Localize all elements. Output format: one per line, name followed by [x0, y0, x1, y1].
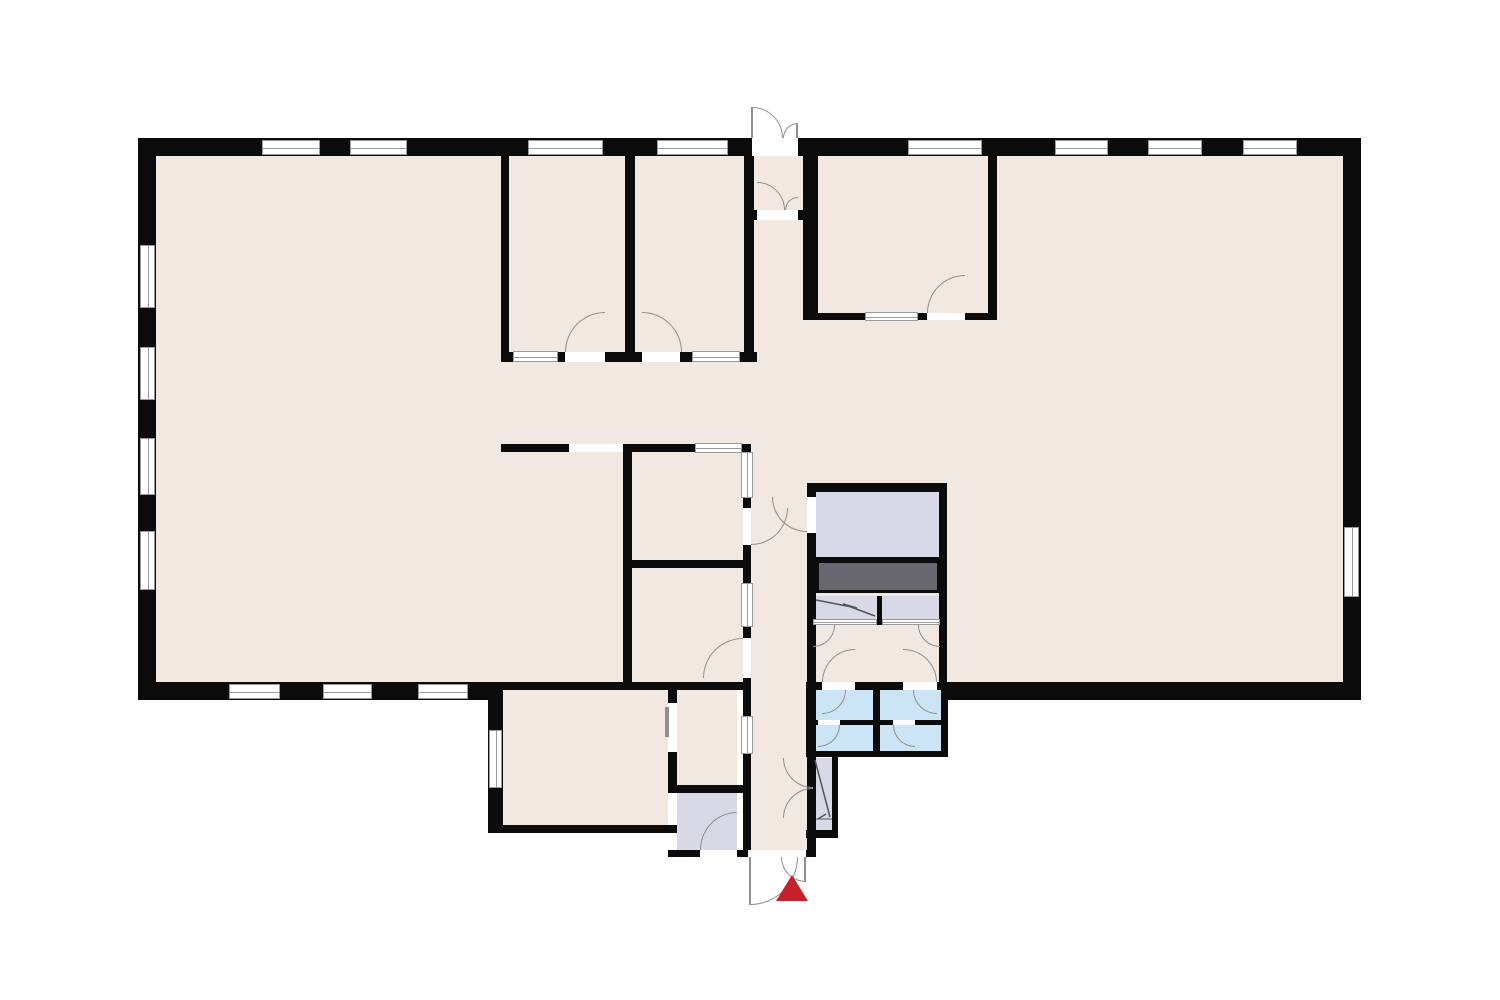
wall-midrooms-divider: [623, 560, 750, 568]
window-west-1: [140, 245, 155, 308]
door-leaf-north-entrance-main: [751, 107, 753, 138]
window-interior-corridor-1: [741, 452, 753, 498]
window-extension-west: [489, 730, 502, 788]
window-west-4: [140, 531, 155, 590]
wall-service-core-north: [807, 483, 947, 492]
window-north-3: [528, 140, 603, 155]
opening-wc-hall-2: [903, 682, 937, 690]
entrance-direction-marker: [776, 875, 808, 901]
floor-closet-right: [882, 596, 939, 620]
door-arc-north-entrance-main: [752, 107, 783, 138]
window-interior-room2-south: [692, 351, 740, 362]
wall-wc-block-east: [941, 690, 948, 757]
opening-utility-south: [700, 850, 737, 857]
counter-unit: [816, 560, 940, 593]
window-west-3: [140, 438, 155, 495]
window-south-3: [418, 684, 468, 699]
wall-service-core-east: [939, 483, 947, 690]
wall-pocket-door-top: [668, 690, 677, 703]
opening-room2-door: [642, 352, 680, 362]
wall-exterior-east: [1343, 156, 1361, 682]
opening-north-entrance: [752, 138, 798, 156]
opening-midroom-lower-door: [743, 638, 751, 678]
wall-room1-west: [501, 156, 509, 362]
wall-utility-south-north: [668, 785, 743, 793]
window-south-1: [229, 684, 280, 699]
floor-plan: [0, 0, 1500, 1000]
floor-large-room-southwest: [503, 690, 668, 825]
wall-shaft-east: [832, 757, 838, 838]
window-north-1: [262, 140, 320, 155]
opening-south-entrance: [748, 850, 806, 857]
opening-room3-door: [927, 313, 965, 320]
window-interior-corridor-2: [741, 583, 753, 627]
wall-wc-block-west: [806, 690, 813, 757]
window-interior-room3-south: [865, 312, 918, 321]
closet-zigzag-symbol: [813, 596, 877, 620]
opening-room1-door: [565, 352, 605, 362]
window-east-1: [1344, 527, 1359, 597]
sliding-door-leaf-side-room: [665, 707, 669, 737]
door-leaf-south-entrance-main: [749, 857, 751, 905]
wall-shaft-south: [806, 830, 838, 838]
window-interior-corridor-3: [741, 716, 753, 754]
window-north-5: [908, 140, 982, 155]
floor-storage-room: [816, 492, 939, 557]
opening-midroom-upper-door: [743, 508, 751, 545]
window-north-6: [1055, 140, 1108, 155]
opening-storage-door: [807, 497, 816, 533]
window-interior-midroom-north: [695, 443, 742, 453]
wall-storage-south: [816, 557, 939, 563]
window-north-8: [1243, 140, 1297, 155]
wall-room2-east: [744, 156, 754, 362]
wall-exterior-west: [138, 156, 156, 700]
wall-vestibule-east: [803, 156, 818, 320]
wall-pocket-door-bottom: [668, 752, 677, 785]
window-interior-room1-south: [513, 351, 558, 362]
window-west-2: [140, 347, 155, 400]
shaft-diagonal-symbol: [813, 757, 832, 831]
window-south-2: [323, 684, 372, 699]
wall-room1-room2-divider: [625, 156, 635, 362]
wall-extension-south-garage: [488, 825, 677, 833]
floor-side-room-south: [677, 690, 737, 785]
door-leaf-north-entrance-small: [796, 123, 798, 138]
wall-exterior-south-east: [948, 682, 1361, 700]
window-north-7: [1148, 140, 1202, 155]
window-north-2: [350, 140, 407, 155]
opening-vestibule-door: [757, 210, 798, 220]
wall-extension-north: [503, 682, 750, 690]
opening-pocket-door: [668, 703, 677, 752]
opening-wc-hall-1: [822, 682, 855, 690]
wall-room3-east: [988, 156, 997, 320]
window-north-4: [657, 140, 728, 155]
opening-midrooms-north: [569, 444, 623, 452]
